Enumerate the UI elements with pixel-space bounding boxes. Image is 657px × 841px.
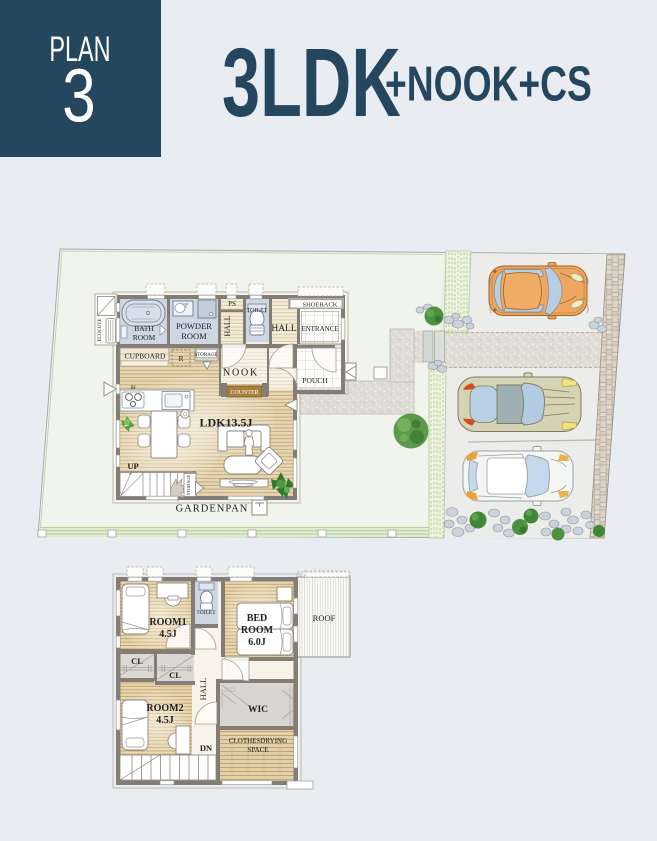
svg-text:DN: DN [200, 743, 213, 753]
svg-text:ROOM: ROOM [133, 333, 156, 342]
svg-text:CL: CL [131, 656, 143, 666]
svg-text:BED: BED [247, 613, 268, 624]
svg-text:IH: IH [130, 386, 136, 391]
svg-text:UP: UP [127, 461, 138, 471]
svg-text:ROOM: ROOM [241, 625, 274, 636]
svg-text:POUCH: POUCH [302, 376, 328, 385]
svg-text:PS: PS [228, 300, 236, 308]
svg-text:BATH: BATH [134, 324, 154, 333]
svg-text:ROOM: ROOM [181, 331, 207, 341]
svg-text:LDK13.5J: LDK13.5J [199, 416, 252, 430]
svg-text:3: 3 [62, 55, 95, 138]
svg-text:CL: CL [169, 670, 181, 680]
svg-text:TOILET: TOILET [247, 308, 268, 314]
svg-text:R: R [178, 354, 183, 363]
svg-text:3LDK: 3LDK [222, 28, 401, 137]
svg-text:SPACE: SPACE [247, 746, 268, 754]
svg-text:NOOK: NOOK [223, 368, 259, 379]
svg-text:ROOM2: ROOM2 [146, 703, 183, 714]
svg-text:HALL: HALL [198, 678, 208, 701]
svg-text:ENTRANCE: ENTRANCE [301, 325, 338, 333]
svg-text:STORAGE: STORAGE [186, 474, 191, 495]
svg-text:TOILET: TOILET [196, 610, 216, 616]
svg-text:GARDENPAN: GARDENPAN [176, 504, 249, 515]
svg-text:ROOF: ROOF [313, 613, 336, 623]
svg-text:HALL: HALL [271, 324, 297, 334]
svg-text:STORAGE: STORAGE [195, 353, 218, 358]
svg-text:WIC: WIC [248, 705, 268, 715]
svg-text:HALL: HALL [223, 315, 232, 336]
svg-text:6.0J: 6.0J [248, 637, 266, 648]
svg-text:SHOERACK: SHOERACK [302, 302, 337, 309]
svg-text:POWDER: POWDER [176, 321, 212, 331]
svg-text:CLOTHESDRYING: CLOTHESDRYING [229, 737, 287, 745]
svg-text:4.5J: 4.5J [159, 629, 177, 640]
svg-text:CUPBOARD: CUPBOARD [125, 352, 166, 361]
svg-text:ECOCUTE: ECOCUTE [98, 318, 103, 341]
svg-text:4.5J: 4.5J [156, 715, 174, 726]
svg-text:+NOOK+CS: +NOOK+CS [385, 58, 592, 112]
svg-text:ROOM1: ROOM1 [149, 617, 186, 628]
svg-text:COUNTER: COUNTER [230, 390, 258, 396]
